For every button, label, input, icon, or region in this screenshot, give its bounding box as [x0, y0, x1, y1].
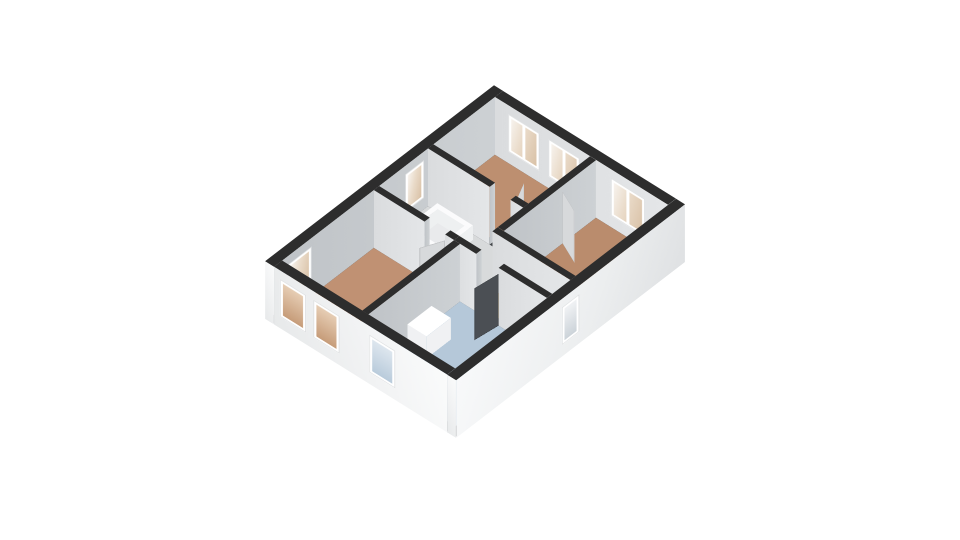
window-bedroom-left-2-glass [316, 305, 336, 349]
window-bathroom [369, 335, 395, 389]
wall-exterior-east-face-south [447, 375, 456, 438]
wall-exterior-west-face-south [265, 261, 274, 324]
window-bedroom-right-mullion [626, 189, 629, 225]
window-landing-side-glass [408, 165, 421, 207]
window-hallway-glass [565, 299, 577, 340]
window-bedroom-left-2 [313, 300, 339, 354]
window-bedroom-left-1 [280, 279, 306, 333]
window-bedroom-top-1-mullion [522, 124, 525, 160]
window-bathroom-glass [372, 339, 392, 383]
window-hallway [562, 294, 579, 345]
window-bedroom-top-1 [508, 114, 539, 171]
floorplan-3d-view [0, 0, 960, 540]
window-bedroom-left-1-glass [283, 284, 303, 328]
